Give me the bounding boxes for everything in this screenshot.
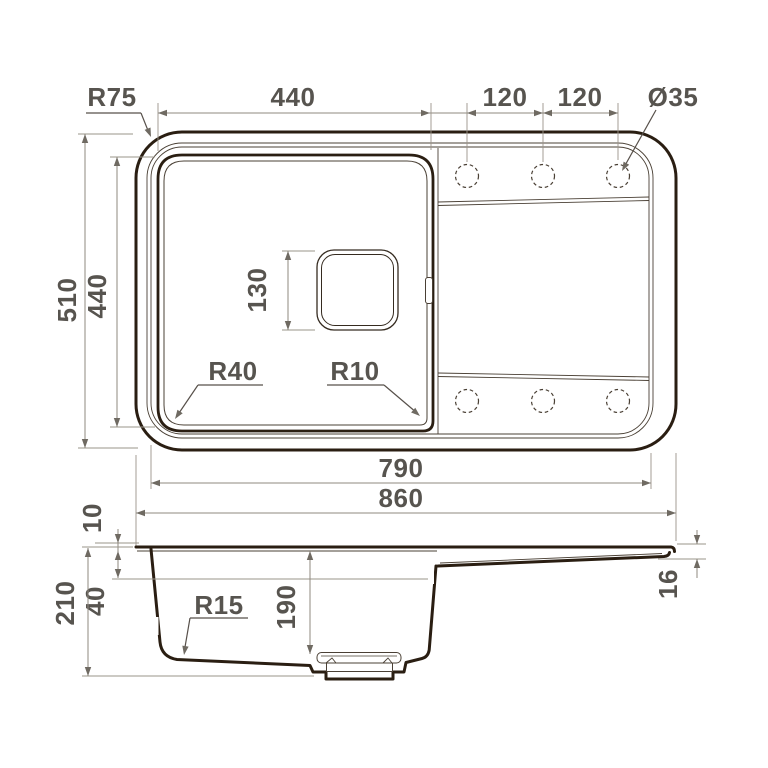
sink-outer-outline [136,132,676,450]
sink-technical-drawing: R75 440 120 120 Ø35 510 440 130 R40 [0,0,768,768]
dim-rim-height: 10 [77,503,107,533]
overflow-notch [426,278,433,304]
dim-bowl-depth: 440 [82,274,112,319]
drainboard [438,148,649,434]
dim-hole-diameter: Ø35 [648,82,699,112]
tap-hole [456,390,479,413]
drain-fitting [317,653,401,672]
dim-edge-height: 16 [653,569,683,599]
dim-bowl-inner-depth: 190 [271,585,301,630]
sink-drawing-page: R75 440 120 120 Ø35 510 440 130 R40 [0,0,768,768]
drain-square [317,250,398,330]
wall-line-break [155,617,159,635]
tap-hole [607,390,630,413]
tap-hole [456,165,479,188]
dim-overall-depth: 510 [52,278,82,323]
sink-rim-line-2 [151,147,649,434]
sink-top-view [136,132,676,450]
dim-overall-length: 860 [379,483,424,513]
dim-r40: R40 [208,356,257,386]
dim-r15: R15 [194,590,243,620]
dim-drain-size: 130 [242,268,272,313]
dim-inner-length: 790 [379,453,424,483]
section-dimensions: 10 40 210 R15 190 16 [50,503,706,676]
dim-hole-pitch-right: 120 [558,82,603,112]
dim-ledge-height: 40 [80,586,110,616]
dim-r10: R10 [330,356,379,386]
drainboard-groove-bottom [438,373,649,377]
tap-hole [532,390,555,413]
dim-r75: R75 [87,82,136,112]
tap-hole [607,165,630,188]
sink-rim-line-1 [147,143,653,438]
wall-line-break [430,569,435,584]
tap-hole [532,165,555,188]
dim-hole-pitch-left: 120 [483,82,528,112]
dim-bowl-width: 440 [271,82,316,112]
dim-total-height: 210 [50,581,80,626]
